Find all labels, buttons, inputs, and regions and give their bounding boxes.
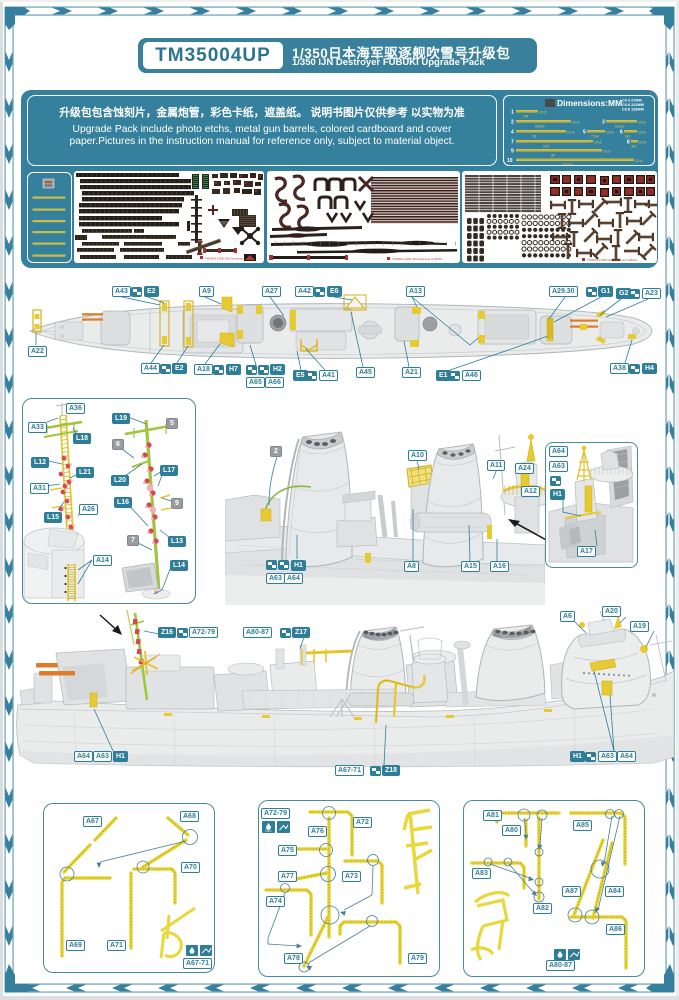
svg-text:GEL: GEL (265, 829, 272, 833)
